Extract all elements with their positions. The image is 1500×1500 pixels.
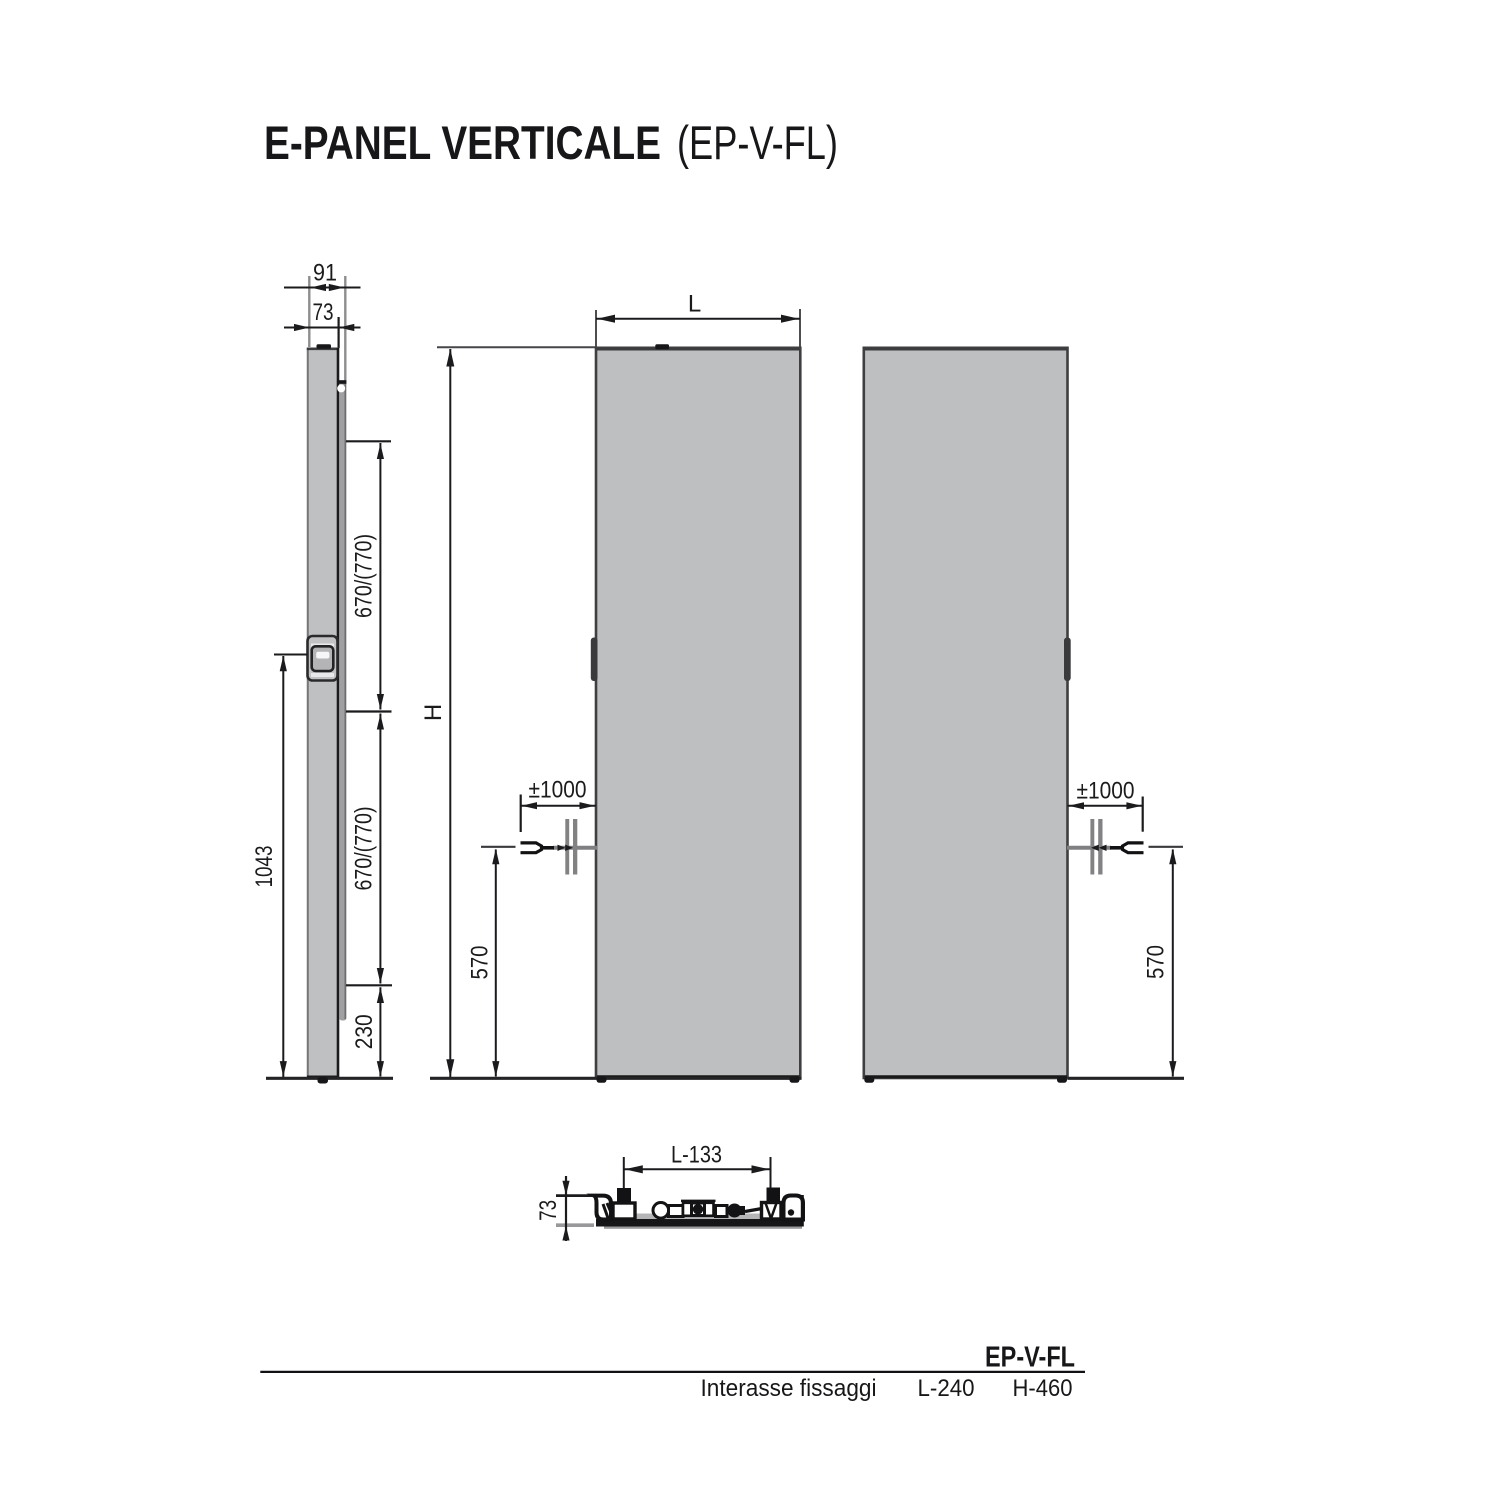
svg-text:570: 570 [1143, 945, 1170, 979]
svg-text:230: 230 [351, 1014, 378, 1049]
svg-text:EP-V-FL: EP-V-FL [985, 1342, 1075, 1374]
svg-text:Interasse fissaggi: Interasse fissaggi [701, 1375, 877, 1402]
svg-text:L: L [688, 291, 701, 318]
svg-text:L-133: L-133 [671, 1142, 722, 1169]
svg-text:1043: 1043 [251, 846, 278, 888]
svg-text:91: 91 [313, 260, 337, 287]
svg-text:E-PANEL VERTICALE: E-PANEL VERTICALE [264, 116, 661, 169]
svg-text:H: H [420, 704, 447, 721]
svg-text:670/(770): 670/(770) [351, 534, 378, 618]
svg-text:±1000: ±1000 [1077, 778, 1135, 805]
svg-text:(EP-V-FL): (EP-V-FL) [677, 116, 838, 169]
svg-text:H-460: H-460 [1013, 1375, 1073, 1402]
svg-text:670/(770): 670/(770) [351, 807, 378, 891]
svg-text:570: 570 [467, 946, 494, 980]
svg-text:73: 73 [535, 1200, 562, 1221]
svg-text:L-240: L-240 [918, 1375, 975, 1402]
svg-text:73: 73 [313, 299, 334, 326]
svg-text:±1000: ±1000 [529, 776, 587, 803]
